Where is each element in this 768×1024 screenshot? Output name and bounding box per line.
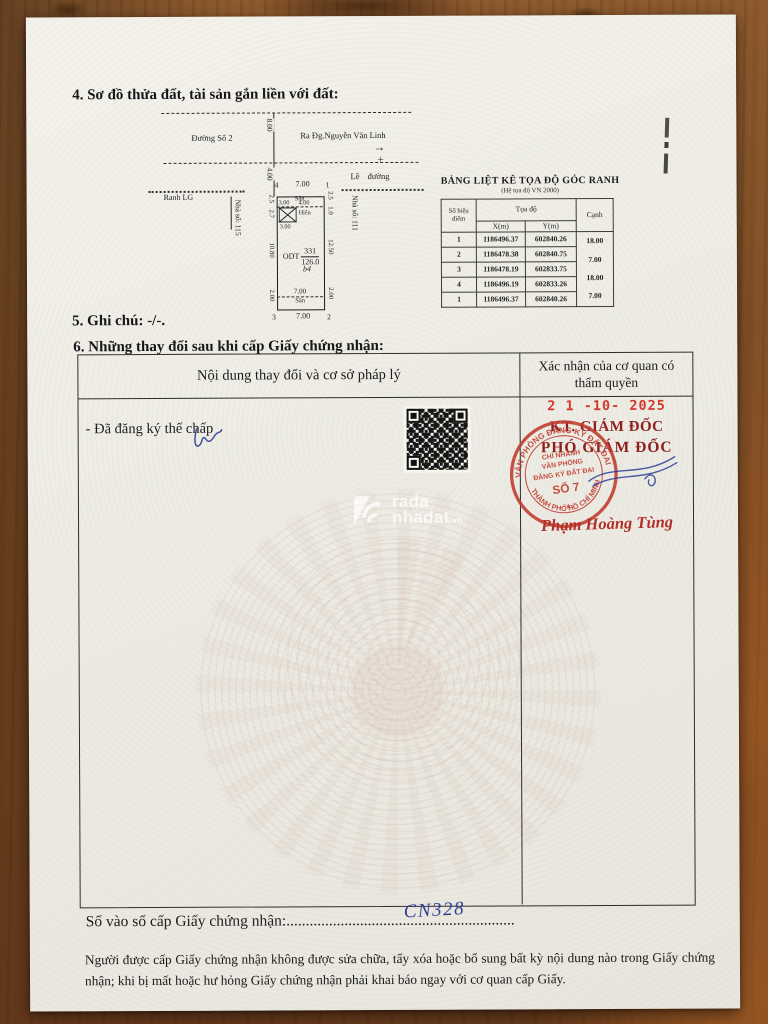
corner-3: 3 (272, 312, 276, 321)
plot-number: 331 (301, 247, 319, 257)
section5-note: 5. Ghi chú: -/-. (72, 313, 165, 330)
plot-diagram: Đường Số 2 8.00 Ra Đg.Nguyễn Văn Linh → … (26, 14, 736, 17)
authority-confirmation-cell: 2 1 -10- 2025 KT. GIÁM ĐỐC PHÓ GIÁM ĐỐC … (520, 397, 694, 905)
y-value: 602833.26 (525, 277, 576, 292)
land-type-label: ODT 331 126.0 (283, 247, 319, 266)
neighbor-boundary-line (231, 197, 232, 230)
road-width-dim: 8.00 (265, 118, 274, 131)
coord-table-subtitle: (Hệ tọa độ VN 2000) (423, 187, 638, 195)
right-dim-4: 2.00 (327, 287, 334, 299)
seal-line4: SỐ 7 (551, 478, 580, 497)
changes-col-left-header: Nội dung thay đổi và cơ sở pháp lý (78, 353, 520, 398)
porch-label: Hiên (299, 209, 311, 216)
block-label: b4 (303, 264, 311, 273)
qr-code (404, 406, 471, 473)
x-value: 1186496.37 (477, 292, 526, 307)
section4-title: 4. Sơ đồ thửa đất, tài sản gắn liền với … (72, 86, 339, 104)
coord-table-title: BẢNG LIỆT KÊ TỌA ĐỘ GÓC RANH (423, 175, 638, 187)
y-value: 602840.26 (526, 292, 577, 307)
left-dim-2: 2.7 (268, 209, 275, 218)
registry-number-handwritten: CN328 (403, 898, 466, 923)
changes-table-header: Nội dung thay đổi và cơ sở pháp lý Xác n… (78, 353, 692, 400)
changes-col-right-header: Xác nhận của cơ quan có thẩm quyền (520, 353, 692, 397)
point-id: 1 (442, 292, 477, 307)
legal-notice: Người được cấp Giấy chứng nhận không đượ… (85, 947, 715, 992)
neighbor-house-right: Nhà số: 111 (351, 195, 360, 231)
y-value: 602833.75 (525, 262, 576, 277)
right-dim-1: 2.5 (327, 191, 334, 200)
corner-1: 1 (326, 180, 330, 189)
changes-table: Nội dung thay đổi và cơ sở pháp lý Xác n… (77, 352, 695, 909)
street-label: Đường Số 2 (191, 133, 232, 143)
point-id: 1 (441, 232, 476, 247)
ink-initial (191, 426, 225, 456)
col-edge-header: Cạnh (576, 198, 613, 231)
corner-2: 2 (327, 312, 331, 321)
edge-length: 18.00 (577, 274, 613, 283)
direction-label: Ra Đg.Nguyễn Văn Linh (300, 130, 385, 140)
corner-4: 4 (275, 180, 279, 189)
x-value: 1186496.37 (476, 232, 525, 247)
boundary-label: Ranh LG (164, 193, 194, 202)
land-use-code: ODT (283, 252, 299, 261)
right-dim-2: 1.0 (327, 206, 334, 215)
x-value: 1186496.19 (476, 277, 525, 292)
setback-dim: 4.00 (265, 167, 274, 180)
curb-dotted-line (342, 189, 424, 191)
curb-label: Lề đường (351, 171, 390, 181)
col-point-header: Số hiệu điểm (441, 199, 476, 232)
col-x-header: X(m) (476, 221, 525, 232)
edge-length: 7.00 (577, 256, 613, 265)
rear-yard-label: Sân (277, 297, 323, 304)
left-dim-1: 2.5 (268, 194, 275, 203)
edge-length: 18.00 (577, 237, 613, 246)
survey-cross-icon: + (377, 154, 383, 166)
dotted-leader: ........................................… (286, 911, 515, 929)
seal-star-icon: ★ (565, 501, 573, 511)
coord-table: Số hiệu điểm Tọa độ Cạnh X(m) Y(m) 1 118… (441, 198, 614, 308)
boundary-dotted-line (149, 191, 245, 193)
certificate-page: 4. Sơ đồ thửa đất, tài sản gắn liền với … (26, 14, 740, 1011)
point-id: 2 (441, 247, 476, 262)
x-value: 1186478.19 (476, 262, 525, 277)
left-dim-3: 10.80 (268, 242, 275, 257)
qr-modules (407, 409, 468, 470)
photo-scene: 4. Sơ đồ thửa đất, tài sản gắn liền với … (0, 0, 768, 1024)
rear-yard-width: 7.00 (277, 287, 323, 295)
ink-signature (585, 453, 680, 493)
structure-x-box (279, 207, 297, 222)
edge-length: 7.00 (577, 292, 613, 301)
col-coord-header: Tọa độ (476, 199, 576, 221)
direction-arrow-icon: → (373, 140, 385, 155)
edge-values: 18.00 7.00 18.00 7.00 (576, 231, 613, 306)
rear-edge-dim: 7.00 (285, 311, 321, 320)
front-edge-dim: 7.00 (285, 179, 321, 188)
left-dim-4: 2.00 (268, 289, 275, 301)
ink-smudge (664, 118, 670, 176)
col-y-header: Y(m) (525, 221, 576, 232)
coord-row: 1 1186496.37 602840.26 18.00 7.00 18.00 … (441, 231, 613, 247)
signer-name: Phạm Hoàng Tùng (515, 511, 700, 537)
qr-finder-icon (407, 409, 421, 423)
point-id: 3 (441, 262, 476, 277)
porch-dim2: 4.00 (299, 199, 310, 206)
qr-finder-icon (454, 409, 468, 423)
porch-dim3: 3.00 (280, 223, 291, 230)
y-value: 602840.26 (525, 232, 576, 247)
changes-content-cell: - Đã đăng ký thế chấp (79, 397, 523, 906)
registry-label: Số vào sổ cấp Giấy chứng nhận: (86, 912, 286, 930)
porch-dim1: 3.00 (279, 199, 290, 206)
qr-finder-icon (407, 456, 421, 470)
road-edge-top-line (161, 112, 411, 114)
y-value: 602840.75 (525, 247, 576, 262)
x-value: 1186478.38 (476, 247, 525, 262)
right-dim-3: 12.50 (327, 239, 334, 254)
point-id: 4 (441, 277, 476, 292)
neighbor-house-left: Nhà số: 115 (234, 200, 243, 236)
